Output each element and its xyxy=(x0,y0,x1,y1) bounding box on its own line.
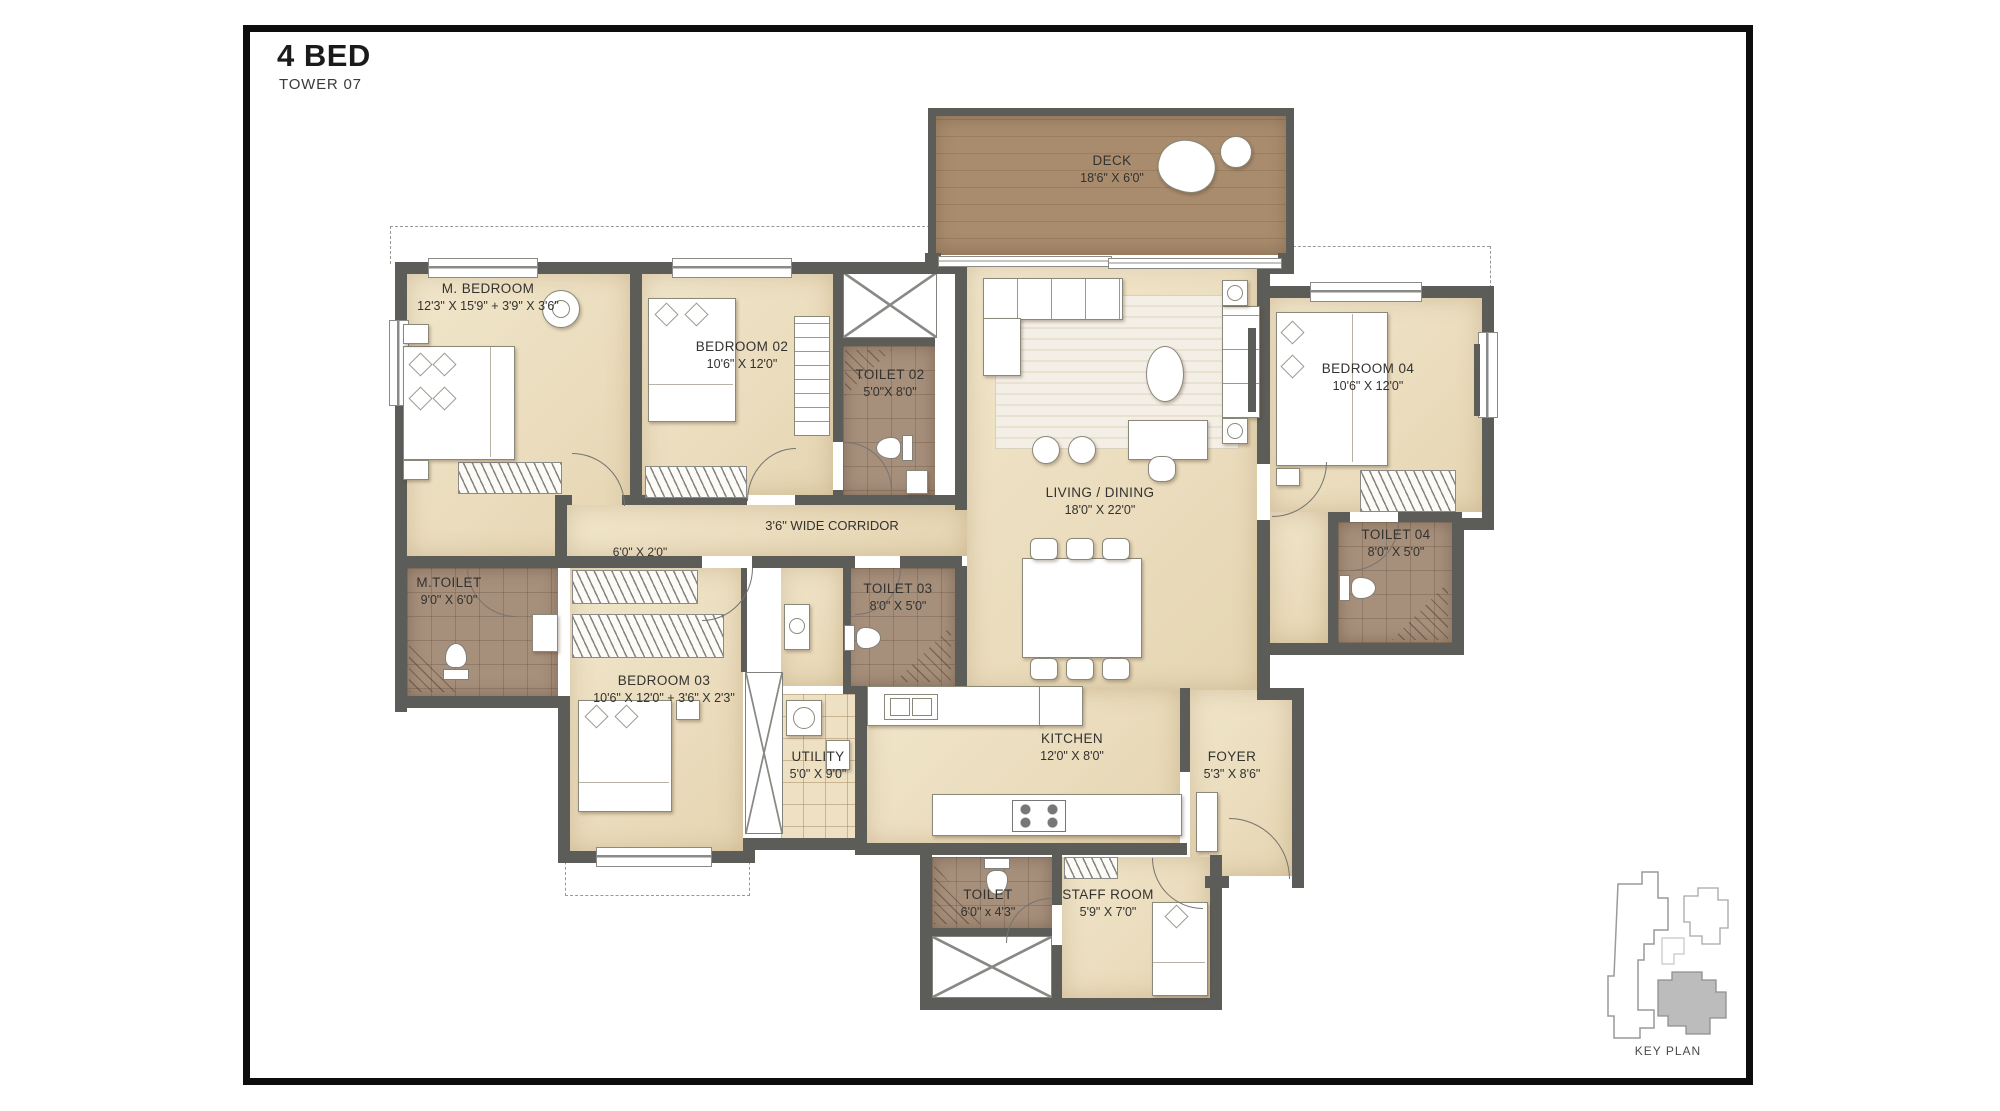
sink-bowl xyxy=(890,698,910,716)
wall xyxy=(555,495,567,556)
room-name: M.TOILET xyxy=(416,574,481,592)
wall xyxy=(855,843,1187,855)
room-dims: 8'0" X 5'0" xyxy=(863,598,932,614)
wall xyxy=(1328,512,1338,652)
wardrobe-hatch xyxy=(572,570,698,604)
blanket-fold xyxy=(579,782,669,783)
plan-subtitle: TOWER 07 xyxy=(279,76,362,93)
room-name: BEDROOM 02 xyxy=(696,338,789,356)
wc-toilet02 xyxy=(877,435,913,461)
kitchen-tall-unit xyxy=(1039,686,1083,726)
basin-bowl xyxy=(789,618,805,634)
key-plan-label: KEY PLAN xyxy=(1588,1044,1748,1058)
wall xyxy=(833,495,967,505)
dining-table xyxy=(1022,558,1142,658)
study-desk xyxy=(1128,420,1208,460)
room-label-bedroom03: BEDROOM 03 10'6" X 12'0" + 3'6" X 2'3" xyxy=(593,672,735,706)
wall xyxy=(855,686,867,843)
wall xyxy=(1398,512,1462,522)
dashed-line xyxy=(390,226,391,264)
wall xyxy=(1180,688,1190,772)
planter xyxy=(1227,285,1243,301)
room-label-foyer: FOYER 5'3" X 8'6" xyxy=(1204,748,1261,782)
dashed-line xyxy=(390,226,930,227)
wall xyxy=(1052,945,1062,1000)
room-label-bedroom02: BEDROOM 02 10'6" X 12'0" xyxy=(696,338,789,372)
nightstand xyxy=(403,324,429,344)
room-dims: 9'0" X 6'0" xyxy=(416,592,481,608)
wall xyxy=(920,998,1222,1010)
room-name: FOYER xyxy=(1204,748,1261,766)
room-name: DECK xyxy=(1080,152,1144,170)
dashed-line xyxy=(1490,246,1491,288)
wardrobe-hatch xyxy=(458,462,562,494)
basin-toilet02 xyxy=(906,470,928,494)
room-name: TOILET 04 xyxy=(1361,526,1430,544)
window xyxy=(596,847,712,867)
tv-console xyxy=(1248,328,1256,412)
sink-bowl xyxy=(912,698,932,716)
wardrobe-hatch xyxy=(1064,857,1118,879)
shaft-box xyxy=(932,936,1052,998)
shaft-box xyxy=(843,272,937,338)
room-label-bedroom04: BEDROOM 04 10'6" X 12'0" xyxy=(1322,360,1415,394)
window xyxy=(1478,332,1498,418)
room-dims: 18'6" X 6'0" xyxy=(1080,170,1144,186)
closet-bedroom02 xyxy=(794,316,830,436)
room-name: STAFF ROOM xyxy=(1062,886,1154,904)
room-label-toilet03: TOILET 03 8'0" X 5'0" xyxy=(863,580,932,614)
room-dims: 12'0" X 8'0" xyxy=(1040,748,1104,764)
room-dims: 5'3" X 8'6" xyxy=(1204,766,1261,782)
room-name: TOILET 03 xyxy=(863,580,932,598)
dining-chair xyxy=(1030,658,1058,680)
room-dims: 5'0"X 8'0" xyxy=(855,384,924,400)
room-label-utility: UTILITY 5'0" X 9'0" xyxy=(790,748,847,782)
room-name: KITCHEN xyxy=(1040,730,1104,748)
pouf xyxy=(1068,436,1096,464)
dining-chair xyxy=(1066,658,1094,680)
coffee-table xyxy=(1146,346,1184,402)
wardrobe-dim-label: 6'0" X 2'0" xyxy=(613,545,667,559)
wall xyxy=(795,495,833,505)
wall xyxy=(743,838,867,850)
wall xyxy=(395,696,569,708)
blanket-fold xyxy=(490,347,491,457)
wall xyxy=(1205,876,1229,888)
wall xyxy=(843,560,851,686)
room-name: TOILET xyxy=(961,886,1016,904)
wardrobe-hatch xyxy=(1360,470,1456,512)
room-label-staff-room: STAFF ROOM 5'9" X 7'0" xyxy=(1062,886,1154,920)
dining-chair xyxy=(1102,538,1130,560)
room-dims: 10'6" X 12'0" xyxy=(1322,378,1415,394)
washer-drum xyxy=(793,707,815,729)
room-name: BEDROOM 03 xyxy=(593,672,735,690)
room-name: TOILET 02 xyxy=(855,366,924,384)
sliding-door-deck xyxy=(938,256,1112,267)
key-plan-highlight xyxy=(1658,972,1726,1034)
room-label-m-bedroom: M. BEDROOM 12'3" X 15'9" + 3'9" X 3'6" xyxy=(417,280,559,314)
foyer-cabinet xyxy=(1196,792,1218,852)
wall xyxy=(1268,643,1464,655)
room-dims: 10'6" X 12'0" + 3'6" X 2'3" xyxy=(593,690,735,706)
window xyxy=(1310,282,1422,302)
wall xyxy=(1452,518,1464,655)
dining-chair xyxy=(1030,538,1058,560)
wall xyxy=(1257,520,1270,700)
room-dims: 6'0" x 4'3" xyxy=(961,904,1016,920)
room-name: LIVING / DINING xyxy=(1046,484,1155,502)
floor-bedroom04-lobby xyxy=(1270,512,1328,643)
desk-chair xyxy=(1148,456,1176,482)
plan-title: 4 BED xyxy=(277,38,371,74)
wall xyxy=(833,262,843,442)
room-name: UTILITY xyxy=(790,748,847,766)
tv-panel xyxy=(1474,344,1480,416)
room-dims: 5'9" X 7'0" xyxy=(1062,904,1154,920)
deck-table xyxy=(1220,136,1252,168)
wardrobe-hatch xyxy=(645,466,747,498)
wall xyxy=(395,556,573,568)
stove xyxy=(1012,800,1066,832)
corridor-label: 3'6" WIDE CORRIDOR xyxy=(765,518,899,533)
dashed-line xyxy=(1268,246,1490,247)
room-dims: 5'0" X 9'0" xyxy=(790,766,847,782)
key-plan-map xyxy=(1588,862,1748,1040)
wall xyxy=(920,855,932,1010)
wall xyxy=(1292,688,1304,888)
room-label-staff-toilet: TOILET 6'0" x 4'3" xyxy=(961,886,1016,920)
sliding-door-deck xyxy=(1108,258,1282,269)
shaft-box xyxy=(745,672,783,834)
wall xyxy=(558,696,570,863)
nightstand xyxy=(403,460,429,480)
wall xyxy=(1328,512,1350,522)
wall xyxy=(955,566,967,698)
room-name: BEDROOM 04 xyxy=(1322,360,1415,378)
wall xyxy=(843,338,935,346)
wc-toilet03 xyxy=(844,625,880,651)
wall xyxy=(630,274,642,495)
window xyxy=(672,258,792,278)
dining-chair xyxy=(1066,538,1094,560)
sofa-chaise xyxy=(983,318,1021,376)
room-label-kitchen: KITCHEN 12'0" X 8'0" xyxy=(1040,730,1104,764)
room-label-toilet02: TOILET 02 5'0"X 8'0" xyxy=(855,366,924,400)
room-dims: 12'3" X 15'9" + 3'9" X 3'6" xyxy=(417,298,559,314)
window xyxy=(428,258,538,278)
wall xyxy=(752,556,845,568)
room-dims: 10'6" X 12'0" xyxy=(696,356,789,372)
blanket-fold xyxy=(1153,962,1205,963)
pouf xyxy=(1032,436,1060,464)
room-name: M. BEDROOM xyxy=(417,280,559,298)
dining-chair xyxy=(1102,658,1130,680)
wall xyxy=(900,556,962,568)
wc-toilet04 xyxy=(1339,575,1375,601)
wall xyxy=(928,108,1294,116)
wall xyxy=(955,262,967,510)
sofa xyxy=(983,278,1123,320)
blanket-fold xyxy=(649,384,733,385)
planter xyxy=(1227,423,1243,439)
basin-m-toilet xyxy=(532,614,558,652)
room-label-living-dining: LIVING / DINING 18'0" X 22'0" xyxy=(1046,484,1155,518)
floor-plan-page: 4 BED TOWER 07 xyxy=(0,0,2000,1111)
room-dims: 18'0" X 22'0" xyxy=(1046,502,1155,518)
wall xyxy=(928,108,936,258)
wall xyxy=(1052,855,1062,905)
room-dims: 8'0" X 5'0" xyxy=(1361,544,1430,560)
wall xyxy=(1286,108,1294,258)
room-label-deck: DECK 18'6" X 6'0" xyxy=(1080,152,1144,186)
room-label-m-toilet: M.TOILET 9'0" X 6'0" xyxy=(416,574,481,608)
room-label-toilet04: TOILET 04 8'0" X 5'0" xyxy=(1361,526,1430,560)
